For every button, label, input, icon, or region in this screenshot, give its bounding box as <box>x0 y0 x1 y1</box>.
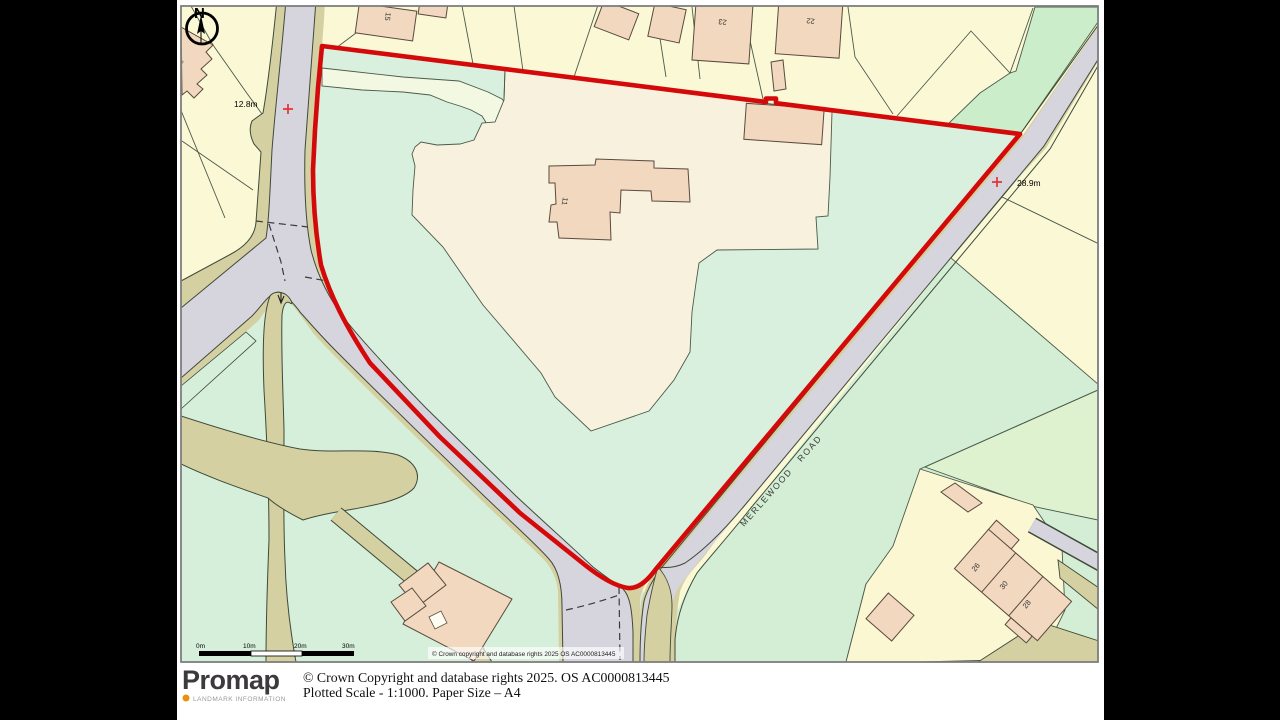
svg-text:22: 22 <box>806 16 815 26</box>
svg-text:12.8m: 12.8m <box>234 99 258 109</box>
svg-text:10m: 10m <box>243 643 256 650</box>
svg-text:LANDMARK INFORMATION: LANDMARK INFORMATION <box>193 696 286 703</box>
svg-text:11: 11 <box>560 197 570 206</box>
svg-text:N: N <box>194 5 205 22</box>
svg-text:© Crown copyright and database: © Crown copyright and database rights 20… <box>432 650 616 658</box>
svg-text:© Crown Copyright and database: © Crown Copyright and database rights 20… <box>303 670 670 685</box>
svg-text:28.9m: 28.9m <box>1017 178 1041 188</box>
svg-text:Promap: Promap <box>182 665 280 695</box>
svg-text:20m: 20m <box>294 643 307 650</box>
svg-text:Plotted Scale - 1:1000. Paper: Plotted Scale - 1:1000. Paper Size – A4 <box>303 685 521 700</box>
svg-text:0m: 0m <box>196 643 205 650</box>
svg-text:15: 15 <box>383 12 393 22</box>
svg-text:30m: 30m <box>342 643 355 650</box>
svg-text:23: 23 <box>718 17 727 27</box>
